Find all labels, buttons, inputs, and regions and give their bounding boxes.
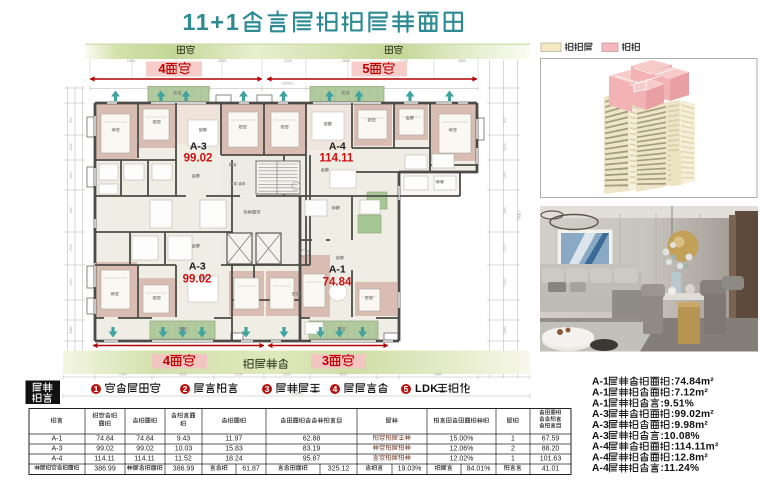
svg-text:A-1: A-1 (52, 435, 63, 442)
svg-text:2800: 2800 (342, 59, 350, 63)
svg-text:A-4: A-4 (592, 452, 609, 463)
svg-text:2800: 2800 (339, 373, 347, 377)
svg-text:1700: 1700 (503, 244, 507, 252)
svg-text:99.02: 99.02 (136, 445, 154, 452)
svg-text:1: 1 (511, 435, 515, 442)
svg-text:A-3: A-3 (190, 140, 207, 152)
svg-text:660: 660 (503, 207, 507, 213)
svg-text:11.97: 11.97 (225, 435, 242, 442)
svg-text:3: 3 (322, 353, 329, 368)
svg-text::10.08%: :10.08% (660, 431, 699, 442)
svg-text:11+1: 11+1 (182, 9, 240, 35)
svg-text:62.88: 62.88 (303, 435, 321, 442)
svg-text:84.01%: 84.01% (467, 466, 491, 473)
svg-text:11.52: 11.52 (175, 455, 192, 462)
svg-text:7930: 7930 (517, 211, 522, 221)
svg-text:1700: 1700 (69, 244, 73, 252)
svg-text:386.99: 386.99 (173, 466, 195, 473)
svg-text:67.59: 67.59 (542, 435, 560, 442)
svg-text:900: 900 (503, 117, 507, 123)
svg-text::9.51%: :9.51% (660, 398, 693, 409)
svg-text:4: 4 (163, 353, 171, 368)
svg-text:114.11: 114.11 (134, 455, 154, 462)
svg-text:A-3: A-3 (189, 260, 206, 272)
svg-text:2800: 2800 (458, 59, 466, 63)
svg-text:1: 1 (94, 384, 99, 394)
svg-text:A-4: A-4 (52, 455, 63, 462)
svg-text:2: 2 (511, 445, 515, 452)
svg-text:A-1: A-1 (592, 398, 609, 409)
svg-text:3230: 3230 (69, 143, 73, 151)
svg-text:41.01: 41.01 (542, 466, 560, 473)
svg-text:74.84: 74.84 (323, 277, 352, 289)
svg-text:74.84: 74.84 (136, 435, 154, 442)
svg-text:95.87: 95.87 (303, 455, 321, 462)
svg-text:A-4: A-4 (329, 140, 346, 152)
svg-text:19.03%: 19.03% (398, 466, 422, 473)
svg-text:A-3: A-3 (592, 420, 609, 431)
svg-text:2400: 2400 (119, 373, 127, 377)
svg-text:15.00%: 15.00% (450, 435, 474, 442)
svg-text:A-1: A-1 (592, 387, 609, 398)
svg-text:1500: 1500 (503, 171, 507, 179)
svg-text:386.99: 386.99 (94, 466, 116, 473)
svg-text:88.20: 88.20 (542, 445, 560, 452)
svg-text:2: 2 (183, 384, 188, 394)
svg-text:1: 1 (511, 455, 515, 462)
svg-text:A-3: A-3 (592, 409, 609, 420)
svg-text::7.12m²: :7.12m² (671, 387, 708, 398)
svg-text:A-3: A-3 (52, 445, 63, 452)
svg-text:99.02: 99.02 (183, 274, 212, 286)
svg-text:83.19: 83.19 (303, 445, 321, 452)
svg-text:2980: 2980 (434, 373, 442, 377)
svg-text:18.24: 18.24 (225, 455, 243, 462)
svg-text:LDK: LDK (415, 383, 439, 395)
svg-text:1150: 1150 (503, 278, 507, 285)
svg-text:2980: 2980 (503, 326, 507, 334)
svg-text::114.11m²: :114.11m² (671, 442, 719, 453)
svg-text:A-4: A-4 (592, 442, 609, 453)
svg-text:4: 4 (158, 61, 166, 76)
svg-text:2980: 2980 (69, 326, 73, 334)
svg-text:2830: 2830 (179, 373, 187, 377)
svg-text:2400: 2400 (127, 59, 135, 63)
svg-text:99.02: 99.02 (184, 153, 213, 165)
svg-text:A-1: A-1 (329, 263, 346, 275)
svg-text:114.11: 114.11 (94, 455, 114, 462)
svg-text:29200: 29200 (281, 81, 293, 86)
svg-text:3: 3 (265, 384, 270, 394)
svg-text:12.02%: 12.02% (450, 455, 474, 462)
svg-text:900: 900 (69, 117, 73, 123)
svg-text:12.06%: 12.06% (450, 445, 474, 452)
svg-text:61.87: 61.87 (242, 466, 260, 473)
svg-text:3130: 3130 (235, 373, 243, 377)
svg-text:114.11: 114.11 (319, 153, 354, 165)
svg-text:5: 5 (362, 61, 369, 76)
svg-text:A-3: A-3 (592, 431, 609, 442)
svg-text:9.43: 9.43 (177, 435, 191, 442)
svg-text::74.84m²: :74.84m² (671, 377, 714, 388)
svg-text:10.03: 10.03 (175, 445, 193, 452)
svg-text:A-1: A-1 (592, 377, 609, 388)
svg-text::99.02m²: :99.02m² (671, 409, 714, 420)
svg-text:A-4: A-4 (592, 463, 609, 474)
svg-text:325.12: 325.12 (328, 466, 350, 473)
svg-text::9.98m²: :9.98m² (671, 420, 708, 431)
svg-text:74.84: 74.84 (96, 435, 114, 442)
svg-text:99.02: 99.02 (96, 445, 114, 452)
svg-text:101.63: 101.63 (540, 455, 562, 462)
svg-text:2920: 2920 (283, 373, 291, 377)
svg-text:5: 5 (404, 384, 409, 394)
svg-text::12.8m²: :12.8m² (671, 452, 708, 463)
svg-text:660: 660 (69, 207, 73, 213)
svg-text:4: 4 (333, 384, 338, 394)
svg-text:15.83: 15.83 (225, 445, 243, 452)
svg-text::11.24%: :11.24% (660, 463, 699, 474)
svg-text:3230: 3230 (503, 143, 507, 151)
svg-text:3230: 3230 (284, 59, 292, 63)
svg-text:1150: 1150 (69, 278, 73, 285)
svg-text:1500: 1500 (69, 171, 73, 179)
